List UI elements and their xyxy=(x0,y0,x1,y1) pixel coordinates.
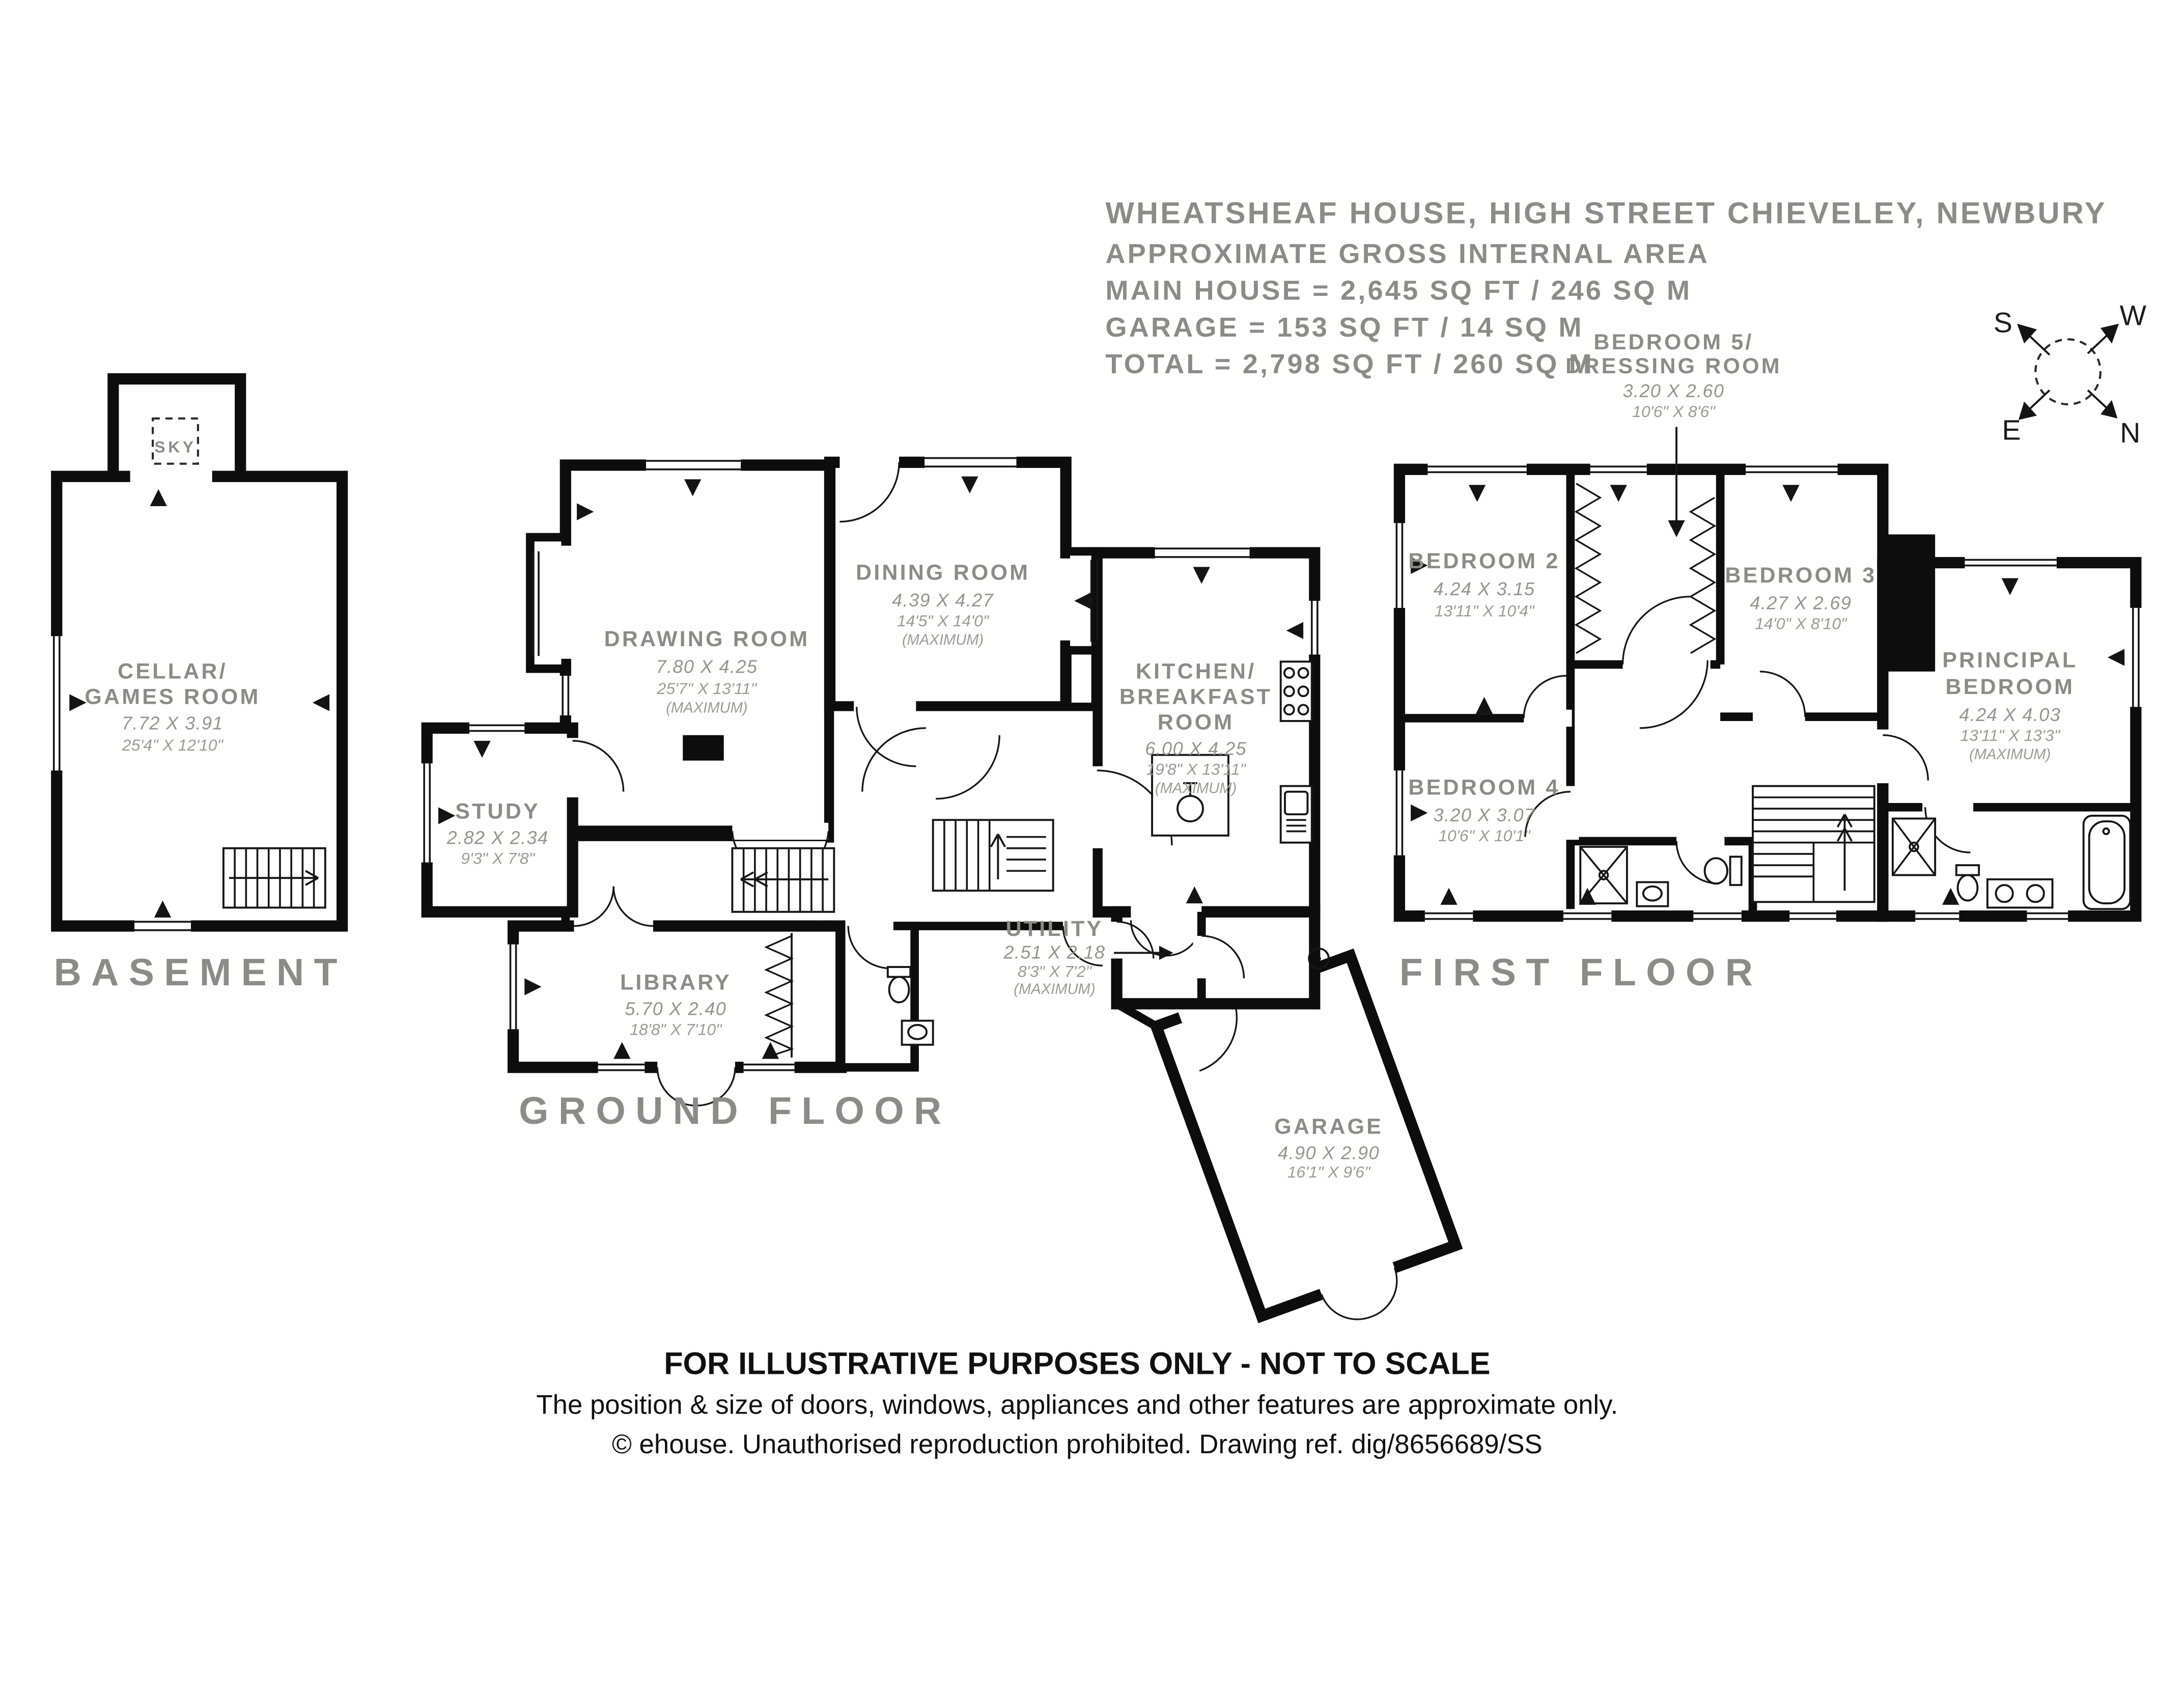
room-dim-metric: 2.82 X 2.34 xyxy=(446,827,549,848)
room-dim-note: (MAXIMUM) xyxy=(1155,781,1237,797)
compass-arrow-w xyxy=(2101,324,2119,344)
room-dim-imperial: 10'6" X 8'6" xyxy=(1632,402,1716,421)
room-name: STUDY xyxy=(455,799,540,824)
room-name: GARAGE xyxy=(1274,1115,1383,1139)
utility-walls xyxy=(1117,912,1315,1004)
room-dim-metric: 4.27 X 2.69 xyxy=(1750,593,1852,614)
compass-arrow-n xyxy=(2101,400,2117,419)
basement-floor-label: BASEMENT xyxy=(54,951,347,993)
double-basin-icon xyxy=(1987,879,2053,908)
window xyxy=(1789,909,1836,923)
toilet-icon xyxy=(1956,865,1979,900)
cellar-window-left xyxy=(49,636,64,770)
window xyxy=(2129,608,2143,707)
cellar-access-stairs xyxy=(933,820,1053,891)
window xyxy=(558,676,573,715)
floorplan-drawing: WHEATSHEAF HOUSE, HIGH STREET CHIEVELEY,… xyxy=(0,0,2184,1688)
room-dim-metric: 7.72 X 3.91 xyxy=(122,713,223,734)
room-dim-imperial: 16'1" X 9'6" xyxy=(1287,1163,1371,1181)
room-dim-imperial: 25'7" X 13'11" xyxy=(657,679,758,698)
basement-plan: SKY CELLAR/ GAMES ROOM 7.72 X 3.91 25'4"… xyxy=(49,379,347,993)
room-dim-imperial: 25'4" X 12'10" xyxy=(122,736,224,754)
bathtub-icon xyxy=(2084,816,2131,909)
title-main-house-area: MAIN HOUSE = 2,645 SQ FT / 246 SQ M xyxy=(1105,275,1692,306)
cellar-window-bottom xyxy=(134,919,191,933)
title-address: WHEATSHEAF HOUSE, HIGH STREET CHIEVELEY,… xyxy=(1105,196,2107,230)
room-dim-imperial: 9'3" X 7'8" xyxy=(461,849,535,867)
first-floor-plan: BEDROOM 2 4.24 X 3.15 13'11" X 10'4" BED… xyxy=(1392,330,2143,993)
room-name: BEDROOM 5/ xyxy=(1593,330,1753,354)
room-dim-imperial: 19'8" X 13'11" xyxy=(1146,760,1246,778)
main-stairs xyxy=(732,848,834,912)
room-dim-imperial: 8'3" X 7'2" xyxy=(1018,962,1092,980)
kitchen-sink-icon xyxy=(1281,786,1312,843)
wc-basin-icon xyxy=(902,1021,933,1045)
room-name: BEDROOM 2 xyxy=(1408,549,1560,573)
room-name: BREAKFAST xyxy=(1119,685,1272,709)
ground-floor-plan: DRAWING ROOM 7.80 X 4.25 25'7" X 13'11" … xyxy=(420,454,1469,1352)
skylight-label: SKY xyxy=(154,437,196,456)
window xyxy=(420,763,434,862)
toilet-icon xyxy=(1705,856,1742,885)
room-dim-metric: 3.20 X 3.07 xyxy=(1434,805,1535,825)
room-name: UTILITY xyxy=(1006,917,1104,941)
title-garage-area: GARAGE = 153 SQ FT / 14 SQ M xyxy=(1105,312,1583,343)
first-floor-label: FIRST FLOOR xyxy=(1399,951,1762,993)
first-floor-stairs xyxy=(1753,786,1874,902)
window xyxy=(1155,544,1250,561)
room-dim-metric: 5.70 X 2.40 xyxy=(625,998,726,1019)
compass-letter-w: W xyxy=(2120,300,2147,331)
window xyxy=(1965,556,2056,570)
basin-icon xyxy=(1637,882,1668,906)
room-dim-metric: 4.90 X 2.90 xyxy=(1278,1143,1380,1164)
window xyxy=(1425,909,1473,923)
room-name: BEDROOM xyxy=(1945,675,2075,699)
room-dim-imperial: 13'11" X 10'4" xyxy=(1435,602,1535,620)
title-gia: APPROXIMATE GROSS INTERNAL AREA xyxy=(1105,238,1710,269)
room-dim-metric: 3.20 X 2.60 xyxy=(1623,380,1725,401)
room-name: LIBRARY xyxy=(620,970,732,994)
window xyxy=(469,721,524,735)
floorplan-page: WHEATSHEAF HOUSE, HIGH STREET CHIEVELEY,… xyxy=(0,0,2184,1688)
compass-letter-e: E xyxy=(2002,414,2021,446)
chimney-breast xyxy=(1883,534,1935,671)
footer-approximate-note: The position & size of doors, windows, a… xyxy=(536,1390,1618,1420)
window xyxy=(744,1060,795,1074)
window xyxy=(1563,909,1611,923)
footer-not-to-scale: FOR ILLUSTRATIVE PURPOSES ONLY - NOT TO … xyxy=(664,1346,1490,1381)
title-total-area: TOTAL = 2,798 SQ FT / 260 SQ M xyxy=(1105,349,1594,379)
room-name: DRAWING ROOM xyxy=(604,627,810,651)
window xyxy=(1392,523,1407,608)
shower-icon xyxy=(1893,819,1935,875)
room-dim-note: (MAXIMUM) xyxy=(902,632,984,648)
room-dim-imperial: 18'8" X 7'10" xyxy=(630,1020,722,1038)
window xyxy=(1693,909,1741,923)
window xyxy=(1746,462,1837,477)
garage-label: GARAGE 4.90 X 2.90 16'1" X 9'6" xyxy=(1274,1115,1383,1181)
footer-copyright: © ehouse. Unauthorised reproduction proh… xyxy=(612,1429,1543,1459)
room-dim-metric: 4.24 X 4.03 xyxy=(1959,704,2061,725)
room-dim-imperial: 14'5" X 14'0" xyxy=(897,612,990,630)
bedroom5-label: BEDROOM 5/ DRESSING ROOM 3.20 X 2.60 10'… xyxy=(1565,330,1782,421)
room-dim-note: (MAXIMUM) xyxy=(666,700,747,716)
room-dim-metric: 6.00 X 4.25 xyxy=(1145,738,1247,759)
window xyxy=(1915,909,1959,923)
window xyxy=(1307,601,1322,655)
window xyxy=(1427,462,1526,477)
window xyxy=(925,454,1016,471)
room-name: ROOM xyxy=(1158,710,1234,735)
study-label: STUDY 2.82 X 2.34 9'3" X 7'8" xyxy=(446,799,549,868)
room-dim-metric: 4.39 X 4.27 xyxy=(892,590,994,611)
room-dim-note: (MAXIMUM) xyxy=(1014,981,1095,998)
basement-stairs xyxy=(223,848,325,908)
room-name: KITCHEN/ xyxy=(1136,659,1256,684)
window xyxy=(2027,909,2068,923)
compass-rose-icon: S W E N xyxy=(1994,300,2147,449)
room-name: BEDROOM 3 xyxy=(1725,563,1877,588)
window xyxy=(1590,462,1647,477)
window xyxy=(646,457,741,474)
room-dim-note: (MAXIMUM) xyxy=(1969,746,2051,763)
wc-toilet-icon xyxy=(888,967,910,1002)
room-dim-metric: 7.80 X 4.25 xyxy=(656,656,758,677)
hob-icon xyxy=(1281,661,1312,721)
room-name: GAMES ROOM xyxy=(85,685,260,709)
room-dim-metric: 4.24 X 3.15 xyxy=(1434,578,1535,599)
room-dim-imperial: 14'0" X 8'10" xyxy=(1755,614,1847,632)
footer-disclaimer: FOR ILLUSTRATIVE PURPOSES ONLY - NOT TO … xyxy=(536,1346,1618,1459)
window xyxy=(598,1060,645,1074)
ground-floor-label: GROUND FLOOR xyxy=(519,1089,951,1132)
room-name: CELLAR/ xyxy=(118,659,228,684)
window xyxy=(506,945,520,1030)
library-label: LIBRARY 5.70 X 2.40 18'8" X 7'10" xyxy=(620,970,732,1038)
room-name: BEDROOM 4 xyxy=(1408,775,1560,799)
room-dim-metric: 2.51 X 2.18 xyxy=(1003,942,1106,962)
window xyxy=(1392,770,1407,855)
room-dim-imperial: 13'11" X 13'3" xyxy=(1960,726,2060,744)
compass-letter-n: N xyxy=(2120,417,2140,449)
compass-letter-s: S xyxy=(1994,307,2012,338)
room-name: PRINCIPAL xyxy=(1942,648,2078,672)
room-name: DINING ROOM xyxy=(856,560,1030,585)
hall-east-walls xyxy=(830,707,1097,926)
room-name: DRESSING ROOM xyxy=(1565,354,1782,378)
chimney-breast xyxy=(683,735,724,761)
room-dim-imperial: 10'6" X 10'1" xyxy=(1438,826,1531,845)
